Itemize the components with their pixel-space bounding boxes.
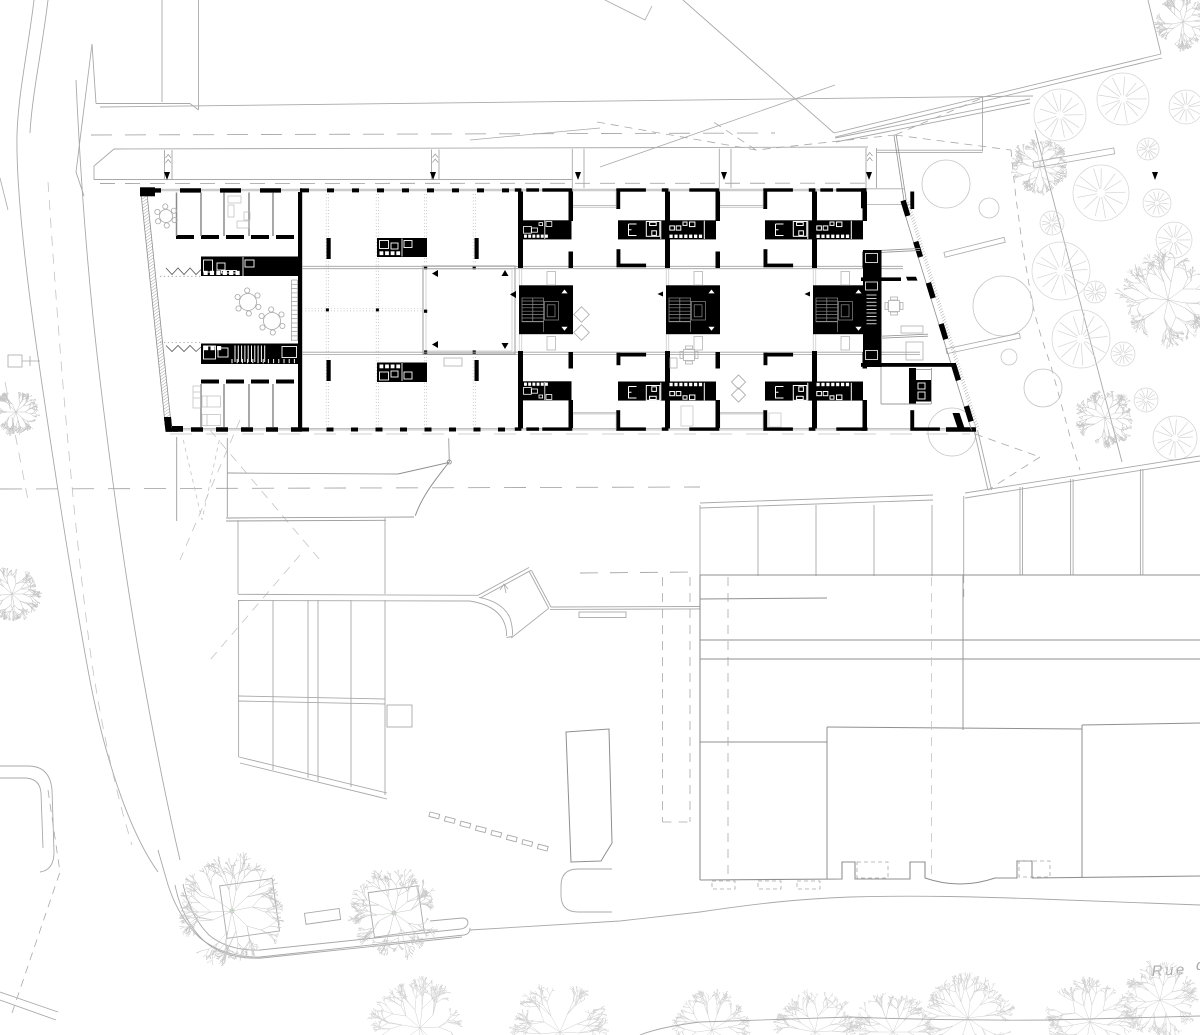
svg-text:de: de	[1196, 957, 1200, 974]
